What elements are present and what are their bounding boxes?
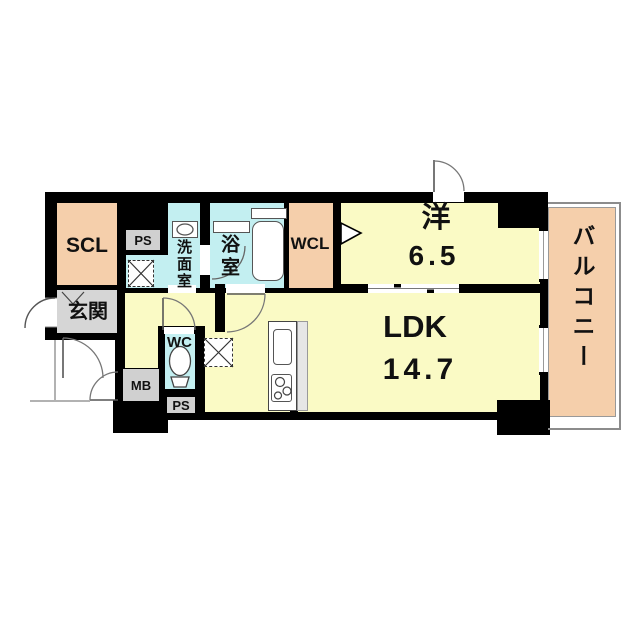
label-wcl: WCL — [287, 232, 333, 254]
bath-ledge — [251, 208, 287, 219]
label-western: 洋 — [418, 201, 454, 235]
window-western — [539, 228, 548, 282]
label-western-size: 6.5 — [398, 240, 470, 272]
bathtub — [252, 221, 284, 281]
entrance-opening — [45, 298, 57, 327]
label-balcony: バルコニー — [570, 224, 593, 374]
western-door-arc — [434, 161, 464, 191]
label-scl: SCL — [62, 230, 112, 260]
window-ldk — [539, 325, 548, 375]
bath-counter — [213, 221, 250, 233]
label-ps-lower: PS — [168, 397, 194, 413]
mb-block — [113, 400, 168, 433]
porch-area — [45, 340, 115, 420]
wc-door-gap — [164, 327, 194, 334]
label-ldk-size: 14.7 — [368, 352, 472, 388]
stove — [271, 374, 292, 402]
label-ldk: LDK — [382, 308, 448, 344]
bath-sliding-gap — [200, 245, 210, 275]
label-ps-upper: PS — [125, 231, 161, 249]
kitchen-counter-strip — [297, 321, 308, 411]
sliding-door — [368, 284, 459, 293]
label-wc: WC — [164, 334, 195, 351]
storage-box-lower — [204, 338, 233, 367]
label-bathroom: 浴室 — [219, 234, 238, 280]
storage-box-upper — [128, 260, 154, 287]
label-mb: MB — [126, 376, 156, 394]
corridor-left-arm — [125, 333, 160, 369]
wall-stub-corridor — [215, 284, 225, 332]
pillar-top-right — [498, 192, 547, 228]
pillar-bottom-right — [497, 400, 550, 435]
wash-sink — [172, 221, 198, 238]
label-washroom: 洗面室 — [176, 239, 191, 290]
kitchen-sink — [273, 329, 292, 365]
ldk-door-gap — [226, 284, 265, 293]
floor-plan: SCL PS 洗面室 浴室 WCL 洋 6.5 バルコニー 玄関 WC MB P… — [0, 0, 640, 640]
label-genkan: 玄関 — [66, 300, 110, 324]
